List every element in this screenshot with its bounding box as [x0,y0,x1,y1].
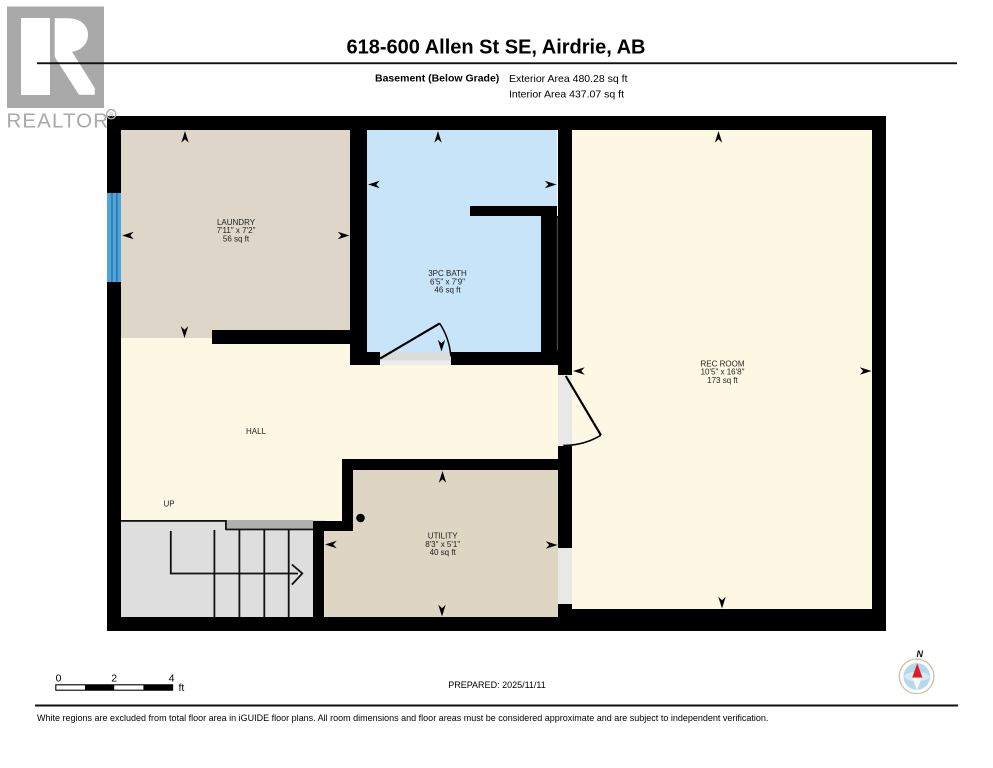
svg-text:Basement (Below Grade): Basement (Below Grade) [375,73,499,85]
svg-text:2: 2 [111,673,117,685]
svg-text:40 sq ft: 40 sq ft [430,548,457,557]
svg-text:UP: UP [163,499,174,508]
svg-text:R: R [109,112,114,119]
svg-text:0: 0 [56,673,62,685]
svg-text:N: N [917,649,924,659]
svg-text:56 sq ft: 56 sq ft [223,234,250,243]
svg-text:HALL: HALL [246,427,267,436]
svg-text:Exterior Area 480.28 sq ft: Exterior Area 480.28 sq ft [509,73,628,85]
svg-text:PREPARED: 2025/11/11: PREPARED: 2025/11/11 [448,680,546,690]
svg-text:618-600 Allen St SE, Airdrie,: 618-600 Allen St SE, Airdrie, AB [347,37,646,59]
svg-text:ft: ft [179,682,185,694]
svg-text:4: 4 [169,673,175,685]
svg-text:46 sq ft: 46 sq ft [434,286,461,295]
svg-text:Interior Area 437.07 sq ft: Interior Area 437.07 sq ft [509,89,624,101]
svg-text:REALTOR: REALTOR [7,110,110,133]
svg-text:173 sq ft: 173 sq ft [707,376,738,385]
svg-text:White regions are excluded fro: White regions are excluded from total fl… [37,713,768,723]
